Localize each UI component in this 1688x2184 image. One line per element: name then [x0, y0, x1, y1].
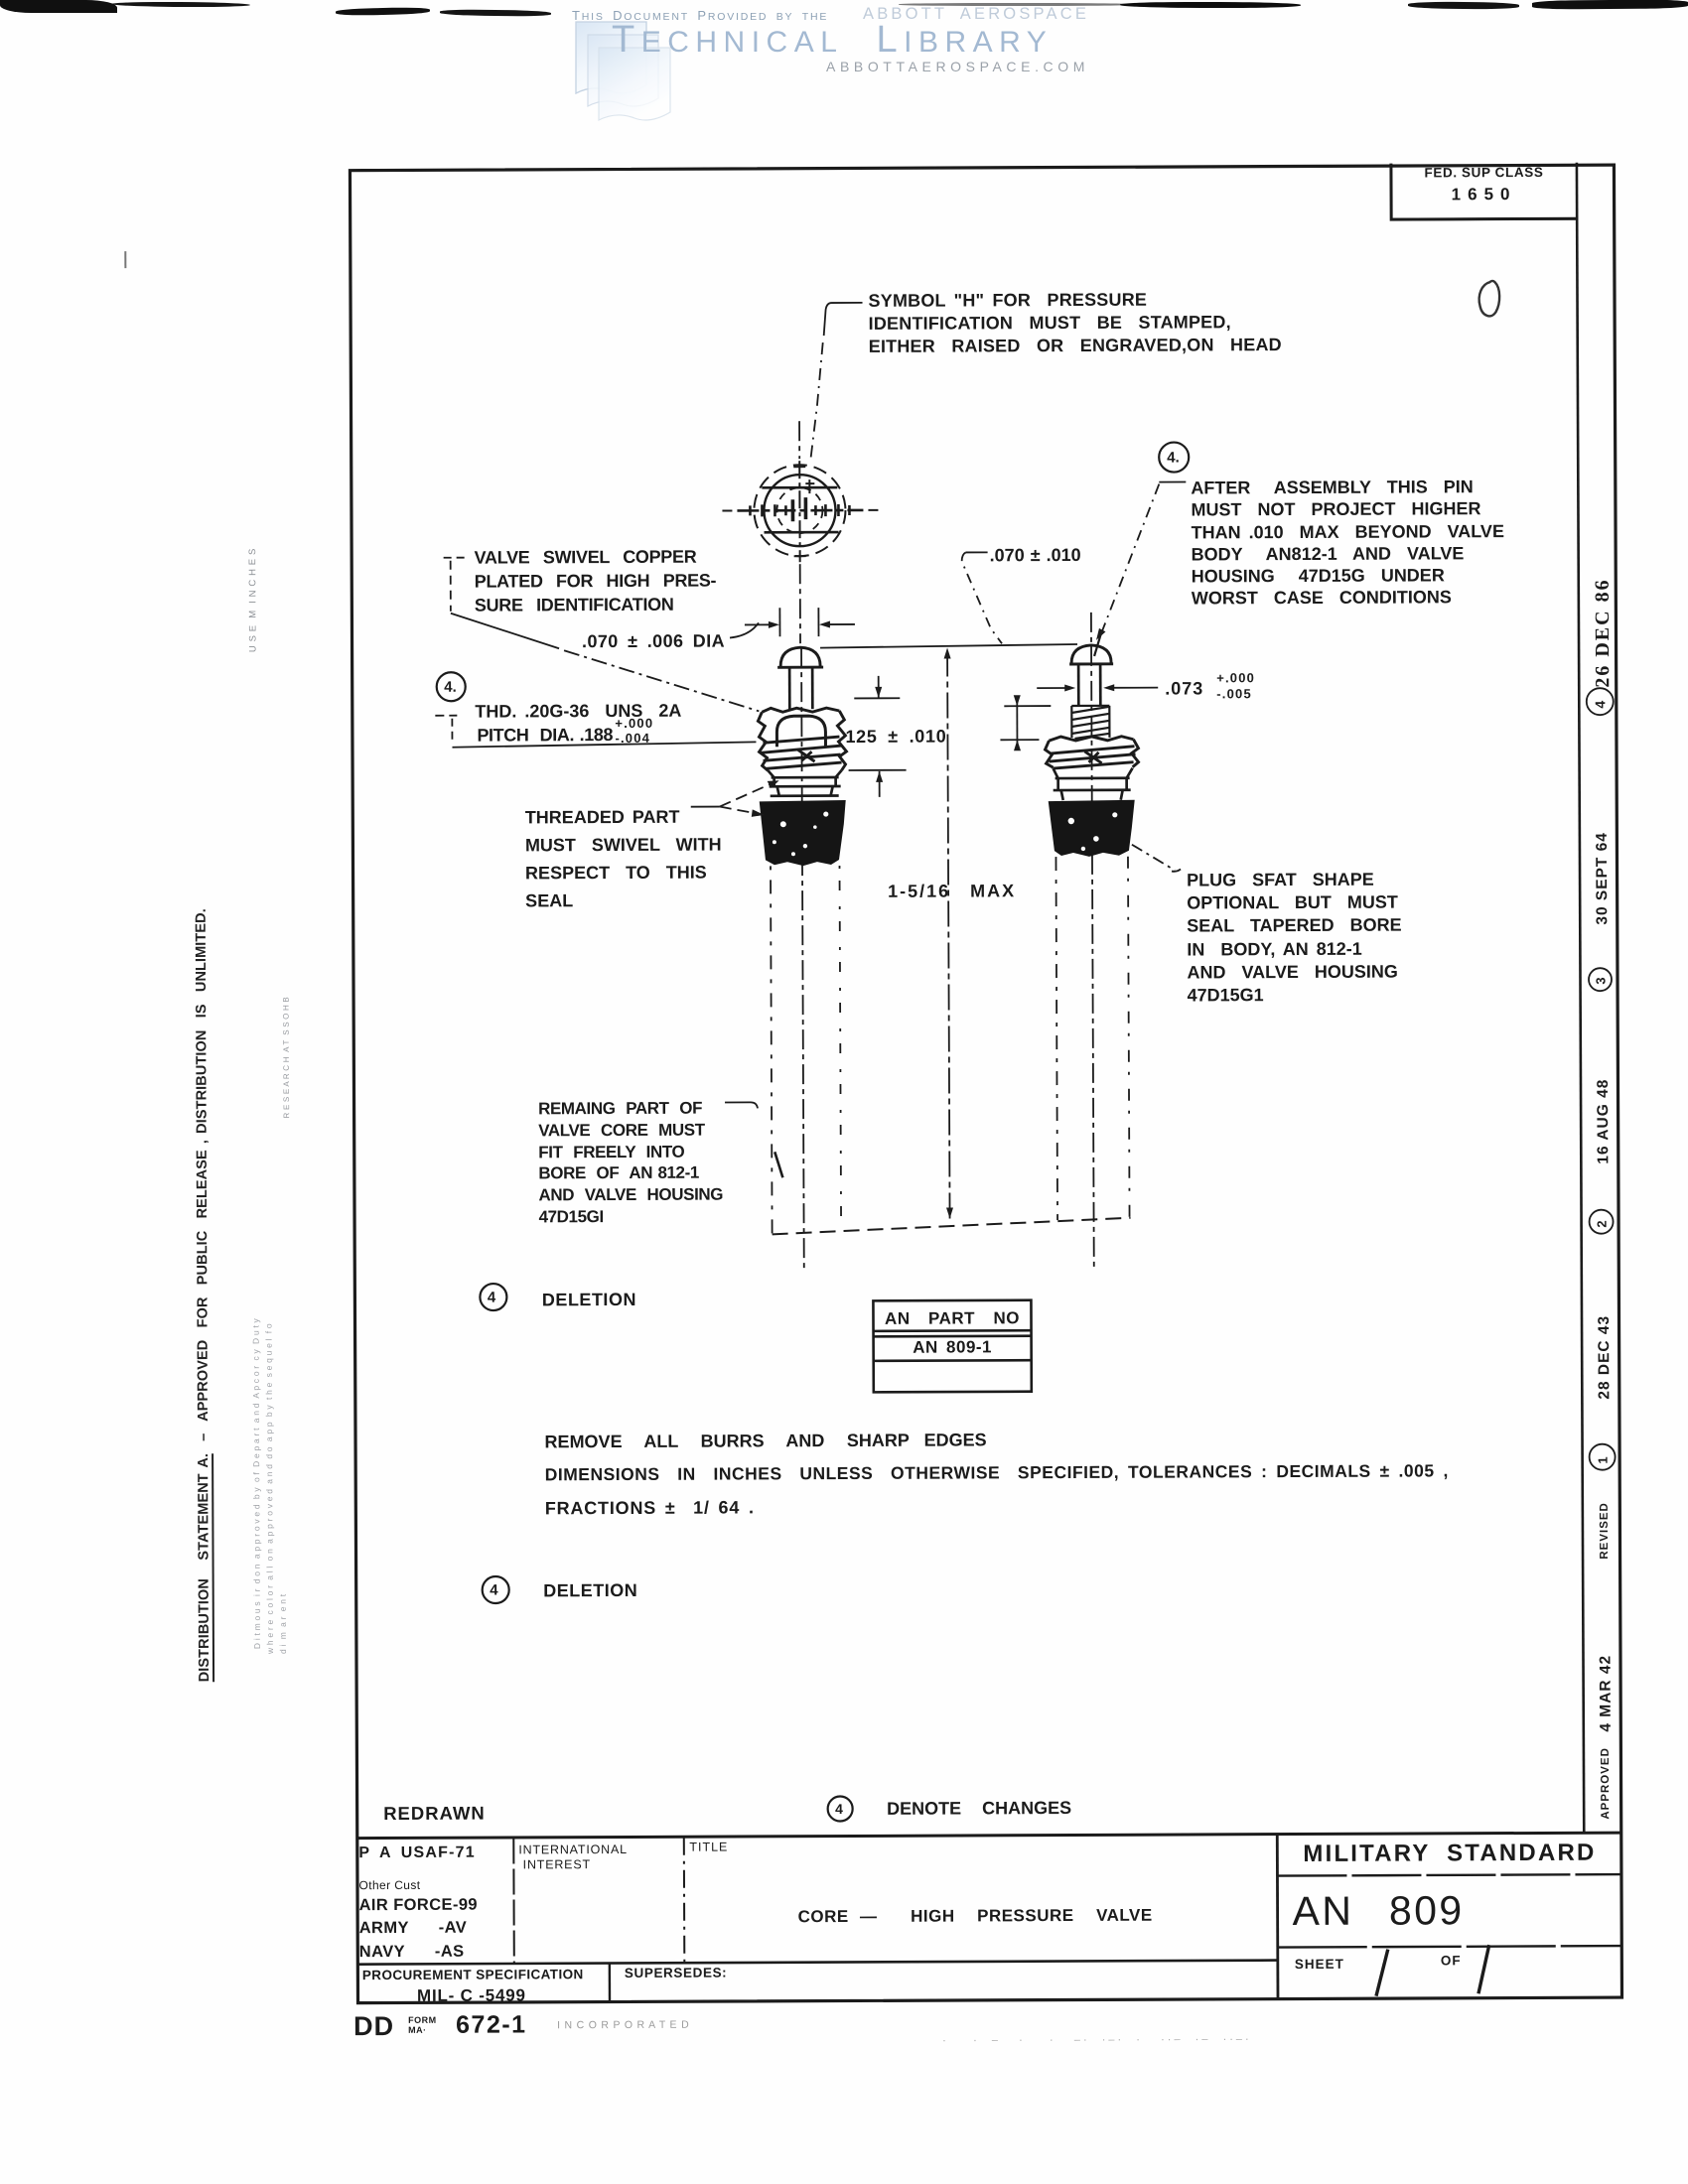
svg-text:30 SEPT 64: 30 SEPT 64 — [1594, 832, 1611, 925]
svg-text:2: 2 — [1595, 1219, 1610, 1227]
svg-text:4: 4 — [1592, 700, 1608, 709]
svg-text:1: 1 — [1596, 1455, 1611, 1463]
svg-text:28 DEC 43: 28 DEC 43 — [1596, 1315, 1613, 1400]
svg-text:3: 3 — [1593, 976, 1608, 984]
svg-text:4 MAR 42: 4 MAR 42 — [1597, 1655, 1614, 1732]
svg-text:16 AUG 48: 16 AUG 48 — [1595, 1079, 1612, 1164]
svg-text:APPROVED: APPROVED — [1600, 1747, 1612, 1820]
svg-text:26 DEC 86: 26 DEC 86 — [1592, 578, 1614, 687]
svg-text:REVISED: REVISED — [1599, 1502, 1611, 1560]
